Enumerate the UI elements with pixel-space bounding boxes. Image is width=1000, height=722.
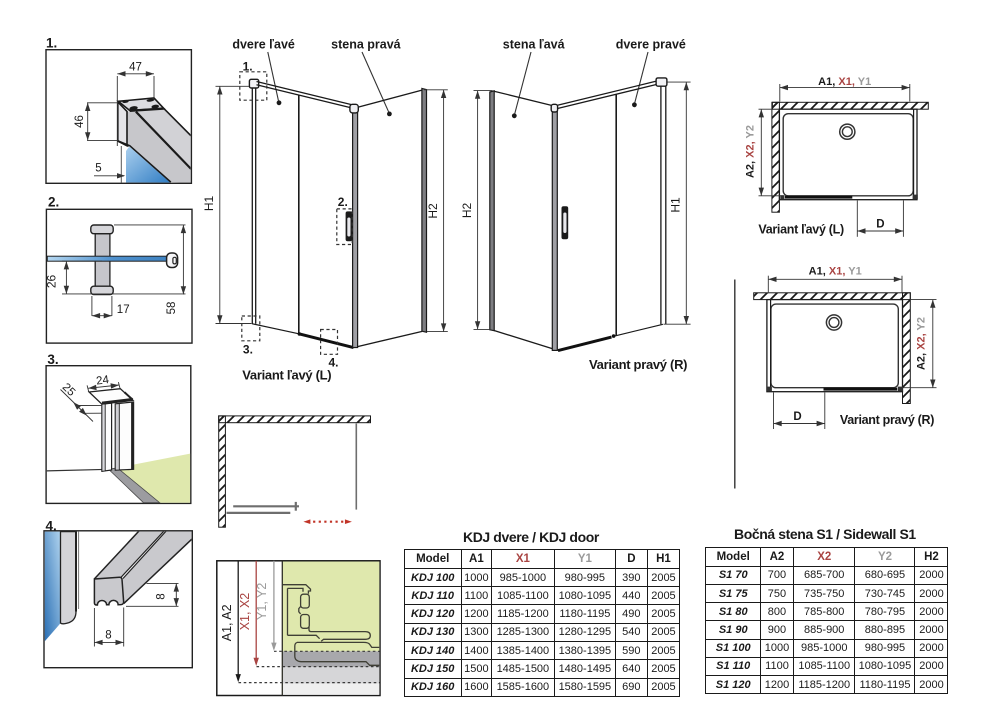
svg-text:dvere ľavé: dvere ľavé (232, 38, 295, 52)
svg-text:Variant pravý (R): Variant pravý (R) (840, 413, 934, 427)
svg-text:dvere pravé: dvere pravé (616, 38, 686, 52)
svg-text:D: D (876, 219, 884, 231)
svg-text:H2: H2 (460, 203, 474, 219)
svg-text:Variant ľavý (L): Variant ľavý (L) (242, 368, 331, 383)
svg-text:A1, X1, Y1: A1, X1, Y1 (818, 76, 871, 88)
svg-text:stena pravá: stena pravá (331, 38, 401, 52)
svg-text:A1, A2: A1, A2 (220, 604, 234, 641)
svg-text:stena ľavá: stena ľavá (503, 38, 565, 52)
svg-text:A2, X2, Y2: A2, X2, Y2 (745, 125, 757, 178)
svg-text:H2: H2 (426, 203, 440, 219)
svg-text:47: 47 (129, 62, 142, 74)
svg-text:17: 17 (117, 304, 130, 316)
svg-text:A2, X2, Y2: A2, X2, Y2 (915, 317, 927, 370)
svg-text:1.: 1. (46, 36, 57, 51)
svg-text:3.: 3. (243, 343, 253, 357)
svg-text:H1: H1 (202, 196, 216, 212)
svg-text:H1: H1 (669, 197, 683, 213)
svg-text:A1, X1, Y1: A1, X1, Y1 (809, 266, 862, 278)
svg-text:D: D (793, 411, 801, 423)
svg-text:2.: 2. (48, 195, 59, 210)
svg-text:3.: 3. (47, 352, 58, 367)
svg-text:Variant ľavý (L): Variant ľavý (L) (758, 223, 844, 237)
svg-text:26: 26 (44, 275, 58, 289)
svg-text:2.: 2. (338, 195, 348, 209)
svg-text:46: 46 (74, 115, 86, 128)
svg-text:8: 8 (156, 593, 168, 599)
svg-text:Variant pravý (R): Variant pravý (R) (589, 357, 687, 372)
svg-text:5: 5 (95, 163, 101, 175)
svg-text:58: 58 (166, 302, 178, 315)
svg-text:8: 8 (105, 629, 111, 641)
svg-text:24: 24 (96, 374, 111, 388)
svg-text:Y1, Y2: Y1, Y2 (255, 583, 269, 620)
svg-text:X1, X2: X1, X2 (238, 593, 252, 631)
